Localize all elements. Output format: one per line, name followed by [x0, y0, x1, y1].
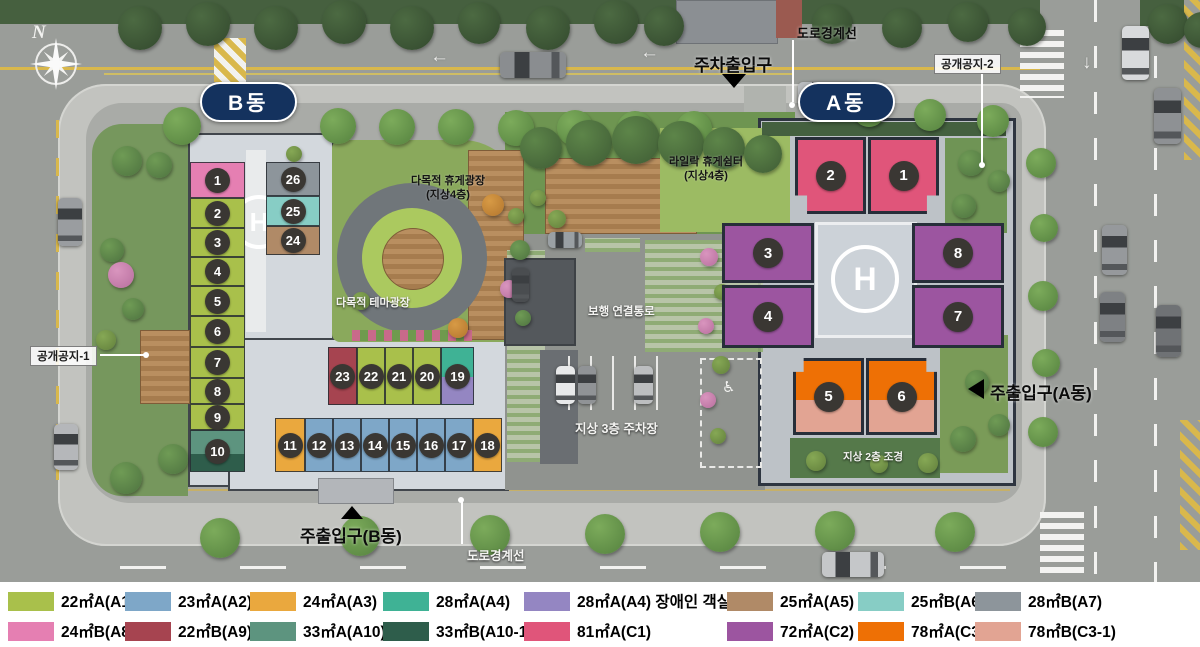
legend-item-A4: 28㎡A(A4) [383, 590, 519, 612]
unit-number-badge: 7 [943, 302, 973, 332]
leader-open-space-1 [100, 354, 144, 356]
lane-dash-right-1 [1094, 0, 1097, 582]
legend-item-A4D: 28㎡A(A4) 장애인 객실 [524, 590, 722, 612]
legend-swatch [727, 592, 773, 611]
site-boundary-line-top [104, 73, 792, 75]
a-right-green-2 [940, 335, 1008, 473]
legend-label: 25㎡B(A6) [911, 590, 985, 612]
building-b-pill: B동 [200, 82, 297, 122]
tree [1030, 214, 1058, 242]
label-road-boundary-top: 도로경계선 [797, 23, 857, 42]
plaza-center-deck [382, 228, 444, 290]
leader-road-boundary-top [792, 40, 794, 102]
legend-swatch [858, 622, 904, 641]
tree [950, 426, 976, 452]
legend-label: 28㎡B(A7) [1028, 590, 1102, 612]
unit-number-badge: 5 [205, 289, 230, 314]
unit-B-26: 26 [266, 162, 320, 196]
map-canvas: ← ← ↓ ↓ H ♿ [0, 0, 1200, 582]
tree [100, 238, 124, 262]
unit-number-badge: 4 [753, 302, 783, 332]
car [1102, 225, 1127, 275]
building-b-pill-label: B동 [228, 92, 269, 115]
main-gate-b-arrow-icon [341, 506, 363, 519]
tree [520, 127, 562, 169]
unit-number-badge: 15 [391, 433, 416, 458]
legend-item-A9: 22㎡B(A9) [125, 620, 245, 642]
car [1122, 26, 1149, 80]
label-plaza-name: 다목적 휴게광장 [392, 174, 504, 188]
unit-B-6: 6 [190, 316, 245, 347]
handicap-stalls [700, 358, 762, 468]
car [1100, 292, 1125, 342]
tree [710, 428, 726, 444]
tree [118, 6, 162, 50]
leader-road-boundary-bottom [461, 502, 463, 544]
legend-label: 25㎡A(A5) [780, 590, 854, 612]
tree [548, 210, 566, 228]
legend-label: 78㎡A(C3) [911, 620, 985, 642]
unit-B-18: 18 [473, 418, 502, 472]
car [548, 232, 582, 248]
road-arrow-left-2: ← [640, 42, 659, 64]
tree [712, 356, 730, 374]
tree [158, 444, 188, 474]
legend-swatch [727, 622, 773, 641]
unit-A-4: 4 [722, 285, 814, 348]
unit-B-4: 4 [190, 257, 245, 286]
unit-B-3: 3 [190, 228, 245, 257]
unit-number-badge: 20 [415, 364, 440, 389]
tree [1028, 417, 1058, 447]
tree [918, 453, 938, 473]
legend-item-A5: 25㎡A(A5) [727, 590, 853, 612]
label-road-boundary-bottom: 도로경계선 [467, 545, 525, 564]
tree [566, 120, 612, 166]
unit-number-badge: 7 [205, 350, 230, 375]
tree [122, 298, 144, 320]
leader-open-space-2 [981, 73, 983, 163]
leader-dot-road-boundary-top [789, 102, 795, 108]
label-theme-plaza: 다목적 테마광장 [336, 294, 410, 310]
tree [390, 6, 434, 50]
label-plaza-floor: (지상4층) [392, 188, 504, 202]
grass-paver-3 [585, 238, 640, 252]
tree [806, 451, 826, 471]
unit-number-badge: 19 [445, 364, 470, 389]
unit-number-badge: 8 [943, 238, 973, 268]
tree [510, 240, 530, 260]
unit-number-badge: 9 [205, 405, 230, 430]
unit-number-badge: 6 [205, 319, 230, 344]
legend-label: 22㎡A(A1) [61, 590, 135, 612]
tree [700, 512, 740, 552]
legend-swatch [975, 592, 1021, 611]
legend-item-C3: 78㎡A(C3) [858, 620, 970, 642]
road-arrow-down-1: ↓ [1082, 52, 1092, 74]
unit-number-badge: 1 [889, 161, 919, 191]
unit-B-2: 2 [190, 198, 245, 228]
legend-label: 78㎡B(C3-1) [1028, 620, 1116, 642]
tree [585, 514, 625, 554]
unit-B-17: 17 [445, 418, 473, 472]
helipad-a-letter: H [853, 261, 876, 298]
label-open-space-2: 공개공지-2 [934, 54, 1001, 74]
unit-number-badge: 26 [281, 167, 306, 192]
building-a-pill: A동 [798, 82, 895, 122]
unit-B-21: 21 [385, 347, 413, 405]
tree [379, 109, 415, 145]
crosswalk-bottom-right [1040, 512, 1084, 578]
label-main-gate-b: 주출입구(B동) [300, 522, 402, 547]
unit-B-15: 15 [389, 418, 417, 472]
leader-dot-road-boundary-bottom [458, 497, 464, 503]
tree [96, 330, 116, 350]
tree [110, 462, 142, 494]
road-arrow-left-1: ← [430, 46, 449, 68]
tree [882, 8, 922, 48]
unit-number-badge: 2 [205, 201, 230, 226]
tree [320, 108, 356, 144]
legend-swatch [383, 592, 429, 611]
building-a-pill-label: A동 [826, 92, 867, 115]
legend-swatch [250, 622, 296, 641]
label-parking-gate: 주차출입구 [694, 51, 772, 76]
tree [448, 318, 468, 338]
tree [952, 194, 976, 218]
label-landscape-2f: 지상 2층 조경 [843, 449, 903, 464]
legend-item-A2: 23㎡A(A2) [125, 590, 245, 612]
car [634, 366, 653, 404]
unit-B-14: 14 [361, 418, 389, 472]
site-plan: ← ← ↓ ↓ H ♿ [0, 0, 1200, 647]
unit-number-badge: 12 [307, 433, 332, 458]
unit-number-badge: 21 [387, 364, 412, 389]
tree [438, 109, 474, 145]
legend-swatch [383, 622, 429, 641]
unit-number-badge: 5 [814, 382, 844, 412]
unit-number-badge: 8 [205, 379, 230, 404]
legend-label: 28㎡A(A4) [436, 590, 510, 612]
legend-item-A3: 24㎡A(A3) [250, 590, 378, 612]
unit-number-badge: 24 [281, 228, 306, 253]
unit-number-badge: 3 [205, 230, 230, 255]
tree [1148, 4, 1188, 44]
tree [815, 511, 855, 551]
legend-swatch [8, 592, 54, 611]
unit-A-6: 6 [866, 358, 937, 435]
tree [988, 170, 1010, 192]
unit-A-3: 3 [722, 223, 814, 283]
hatch-right-bottom [1180, 420, 1200, 550]
leader-dot-open-space-1 [143, 352, 149, 358]
legend-item-C2: 72㎡A(C2) [727, 620, 853, 642]
tree [200, 518, 240, 558]
legend-bar: 22㎡A(A1)23㎡A(A2)24㎡A(A3)28㎡A(A4)28㎡A(A4)… [0, 582, 1200, 647]
tree [1028, 281, 1058, 311]
label-lilac-floor: (지상4층) [650, 169, 762, 183]
unit-B-10: 10 [190, 430, 245, 472]
car [556, 366, 575, 404]
tree [914, 99, 946, 131]
unit-number-badge: 11 [278, 433, 303, 458]
lane-dash-bottom [120, 566, 1020, 569]
legend-item-A10-1: 33㎡B(A10-1) [383, 620, 519, 642]
legend-label: 33㎡A(A10) [303, 620, 386, 642]
helipad-a: H [831, 245, 899, 313]
tree [322, 0, 366, 44]
legend-swatch [858, 592, 904, 611]
parking-gate-arrow-icon [722, 74, 746, 88]
unit-B-19: 19 [441, 347, 474, 405]
legend-label: 22㎡B(A9) [178, 620, 252, 642]
unit-number-badge: 1 [205, 168, 230, 193]
unit-number-badge: 14 [363, 433, 388, 458]
tree [458, 2, 500, 44]
unit-number-badge: 17 [447, 433, 472, 458]
car [500, 52, 566, 78]
unit-number-badge: 10 [205, 439, 230, 464]
corner-building [676, 0, 778, 44]
unit-number-badge: 25 [281, 199, 306, 224]
unit-number-badge: 23 [330, 364, 355, 389]
unit-B-22: 22 [357, 347, 385, 405]
legend-item-A7: 28㎡B(A7) [975, 590, 1099, 612]
unit-B-25: 25 [266, 196, 320, 226]
legend-swatch [975, 622, 1021, 641]
tree [1008, 8, 1046, 46]
legend-swatch [8, 622, 54, 641]
tree [1026, 148, 1056, 178]
main-gate-a-arrow-icon [968, 379, 984, 399]
car [822, 552, 884, 577]
legend-label: 72㎡A(C2) [780, 620, 854, 642]
unit-B-5: 5 [190, 286, 245, 316]
car [1156, 305, 1181, 357]
tree [594, 0, 638, 44]
tree [163, 107, 201, 145]
tree [186, 2, 230, 46]
label-parking-3f: 지상 3층 주차장 [575, 418, 658, 437]
label-main-gate-a: 주출입구(A동) [990, 379, 1092, 404]
unit-number-badge: 22 [359, 364, 384, 389]
b-entrance-canopy [318, 478, 394, 504]
tree [644, 6, 684, 46]
tree [508, 208, 524, 224]
legend-item-A1: 22㎡A(A1) [8, 590, 120, 612]
unit-B-8: 8 [190, 378, 245, 404]
legend-item-C1: 81㎡A(C1) [524, 620, 722, 642]
unit-B-13: 13 [333, 418, 361, 472]
legend-item-A6: 25㎡B(A6) [858, 590, 970, 612]
tree [146, 152, 172, 178]
legend-swatch [125, 622, 171, 641]
unit-B-1: 1 [190, 162, 245, 198]
unit-B-24: 24 [266, 226, 320, 255]
tree [108, 262, 134, 288]
unit-B-11: 11 [275, 418, 305, 472]
tree [700, 392, 716, 408]
legend-label: 28㎡A(A4) 장애인 객실 [577, 590, 731, 612]
unit-number-badge: 13 [335, 433, 360, 458]
tree [515, 310, 531, 326]
legend-swatch [250, 592, 296, 611]
legend-item-A10: 33㎡A(A10) [250, 620, 378, 642]
tree [698, 318, 714, 334]
legend-item-A8: 24㎡B(A8) [8, 620, 120, 642]
unit-number-badge: 2 [816, 161, 846, 191]
label-lilac-name: 라일락 휴게쉼터 [650, 155, 762, 169]
unit-number-badge: 16 [419, 433, 444, 458]
tree [935, 512, 975, 552]
unit-B-20: 20 [413, 347, 441, 405]
unit-B-16: 16 [417, 418, 445, 472]
label-plaza: 다목적 휴게광장 (지상4층) [392, 174, 504, 203]
unit-number-badge: 18 [475, 433, 500, 458]
hatch-strip-top [214, 38, 246, 82]
car [578, 366, 596, 404]
unit-A-8: 8 [912, 223, 1004, 283]
legend-item-C3-1: 78㎡B(C3-1) [975, 620, 1099, 642]
tree [112, 146, 142, 176]
leader-dot-open-space-2 [979, 162, 985, 168]
car [54, 424, 78, 470]
unit-A-7: 7 [912, 285, 1004, 348]
legend-label: 33㎡B(A10-1) [436, 620, 532, 642]
tree [948, 2, 988, 42]
wheelchair-icon: ♿ [722, 378, 735, 396]
legend-swatch [524, 622, 570, 641]
tree [254, 6, 298, 50]
car [58, 198, 82, 246]
tree [700, 248, 718, 266]
legend-swatch [524, 592, 570, 611]
tree [988, 414, 1010, 436]
unit-B-23: 23 [328, 347, 357, 405]
legend-label: 24㎡B(A8) [61, 620, 135, 642]
label-lilac: 라일락 휴게쉼터 (지상4층) [650, 155, 762, 184]
car [512, 268, 529, 302]
unit-A-5: 5 [793, 358, 864, 435]
unit-number-badge: 4 [205, 259, 230, 284]
label-walk-link: 보행 연결통로 [588, 303, 655, 319]
left-garden-deck [140, 330, 190, 404]
unit-B-12: 12 [305, 418, 333, 472]
car [1154, 88, 1181, 144]
compass: N [24, 22, 94, 96]
tree [526, 6, 570, 50]
legend-label: 23㎡A(A2) [178, 590, 252, 612]
unit-B-9: 9 [190, 404, 245, 430]
unit-B-7: 7 [190, 347, 245, 378]
label-open-space-1: 공개공지-1 [30, 346, 97, 366]
compass-rose-icon [28, 36, 84, 92]
tree [530, 190, 546, 206]
unit-number-badge: 6 [887, 382, 917, 412]
legend-swatch [125, 592, 171, 611]
a-top-hedge [762, 122, 1006, 136]
tree [286, 146, 302, 162]
unit-number-badge: 3 [753, 238, 783, 268]
legend-label: 24㎡A(A3) [303, 590, 377, 612]
legend-label: 81㎡A(C1) [577, 620, 651, 642]
tree [1032, 349, 1060, 377]
